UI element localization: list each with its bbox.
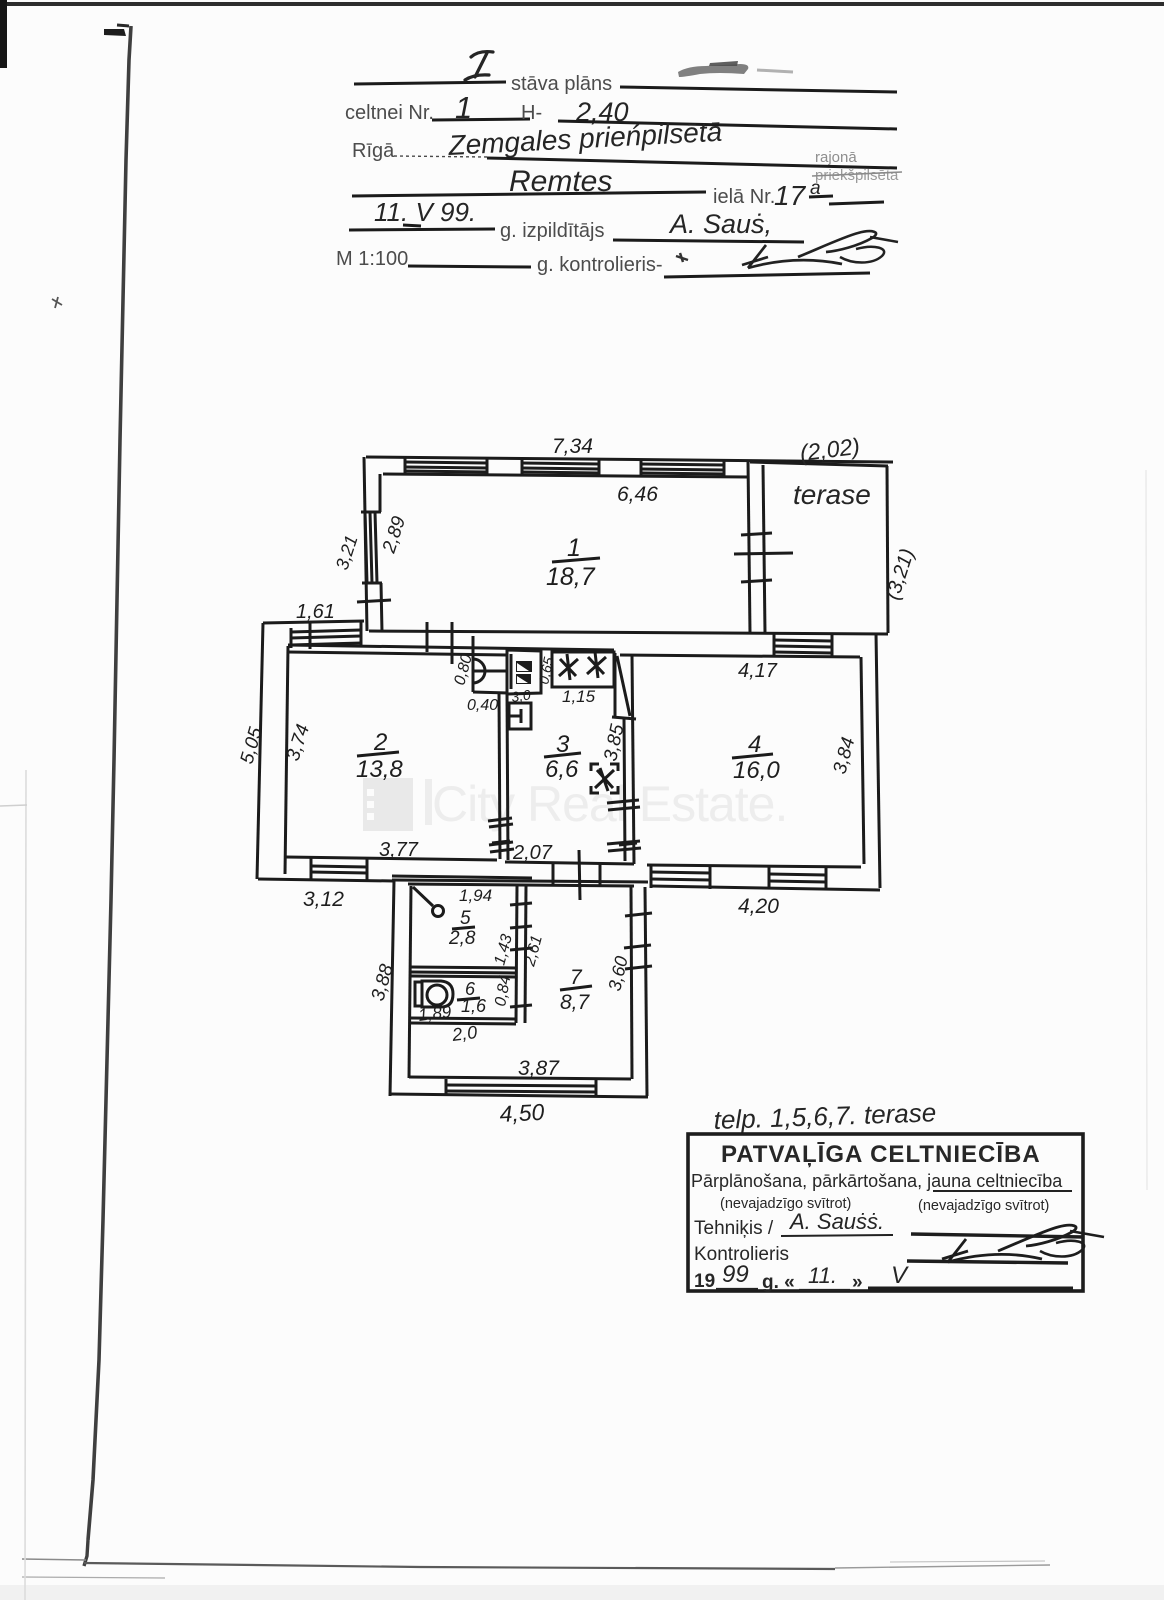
svg-text:1,43: 1,43 (491, 932, 516, 967)
svg-text:2,0: 2,0 (450, 1022, 478, 1045)
svg-text:8,7: 8,7 (560, 991, 591, 1014)
svg-text:5: 5 (460, 908, 471, 929)
svg-text:1: 1 (567, 534, 581, 562)
svg-text:7,34: 7,34 (552, 435, 593, 458)
svg-text:99: 99 (722, 1261, 749, 1288)
svg-text:Pārplānošana, pārkārtošana, ja: Pārplānošana, pārkārtošana, jauna celtni… (691, 1171, 1063, 1191)
svg-text:rajonā: rajonā (815, 149, 857, 166)
svg-text:3,77: 3,77 (379, 839, 419, 861)
svg-text:6,6: 6,6 (545, 756, 579, 783)
svg-text:ielā Nr.: ielā Nr. (713, 186, 775, 208)
svg-text:Rīgā: Rīgā (352, 140, 395, 162)
svg-text:2,07: 2,07 (512, 842, 553, 864)
svg-text:3,84: 3,84 (830, 735, 860, 776)
svg-text:H-: H- (521, 102, 542, 124)
svg-text:0,84: 0,84 (492, 974, 514, 1008)
svg-text:Zemgales prieńpilsētā: Zemgales prieńpilsētā (447, 116, 723, 161)
svg-text:6,46: 6,46 (617, 483, 658, 506)
svg-text:3,12: 3,12 (303, 888, 344, 911)
svg-text:M 1:100: M 1:100 (336, 248, 408, 270)
svg-text:(nevajadzīgo svītrot): (nevajadzīgo svītrot) (918, 1198, 1049, 1214)
svg-text:3,87: 3,87 (518, 1057, 560, 1080)
svg-text:celtnei Nr.: celtnei Nr. (345, 102, 434, 124)
svg-text:18,7: 18,7 (546, 563, 596, 591)
svg-text:2,8: 2,8 (448, 928, 476, 949)
svg-text:4,50: 4,50 (499, 1099, 545, 1127)
svg-text:13,8: 13,8 (356, 756, 403, 783)
svg-text:V: V (891, 1262, 909, 1289)
svg-text:telp. 1,5,6,7. terase: telp. 1,5,6,7. terase (713, 1097, 937, 1135)
svg-text:1,15: 1,15 (562, 687, 596, 706)
svg-text:g. izpildītājs: g. izpildītājs (500, 220, 605, 242)
svg-text:1,61: 1,61 (296, 601, 335, 623)
svg-text:»: » (852, 1272, 863, 1293)
svg-text:0,40: 0,40 (467, 697, 498, 714)
svg-text:g. kontrolieris-: g. kontrolieris- (537, 254, 663, 276)
svg-text:1,89: 1,89 (417, 1002, 453, 1025)
svg-text:3,60: 3,60 (604, 954, 631, 993)
svg-text:7: 7 (570, 966, 583, 989)
svg-text:A. Sauṡṡ.: A. Sauṡṡ. (788, 1209, 884, 1234)
svg-text:g. «: g. « (762, 1272, 795, 1293)
svg-text:11. V 99.: 11. V 99. (374, 197, 476, 227)
svg-text:16,0: 16,0 (733, 757, 780, 784)
svg-text:PATVAĻĪGA CELTNIECĪBA: PATVAĻĪGA CELTNIECĪBA (721, 1141, 1041, 1168)
svg-text:4,17: 4,17 (738, 660, 778, 682)
svg-text:5,05: 5,05 (237, 725, 267, 767)
svg-text:19: 19 (694, 1271, 715, 1292)
svg-text:17: 17 (774, 180, 807, 211)
svg-text:stāva plāns: stāva plāns (511, 73, 612, 95)
svg-text:3,88: 3,88 (368, 962, 398, 1004)
svg-text:4,20: 4,20 (738, 895, 779, 918)
svg-text:11.: 11. (808, 1263, 837, 1288)
svg-text:3,21: 3,21 (332, 533, 362, 573)
svg-text:Tehniķis /: Tehniķis / (694, 1218, 774, 1239)
svg-text:1,94: 1,94 (459, 886, 492, 905)
svg-text:2,89: 2,89 (378, 513, 410, 556)
svg-text:terase: terase (793, 479, 871, 510)
svg-text:1,6: 1,6 (461, 996, 487, 1016)
svg-text:A. Sauṡ,: A. Sauṡ, (668, 209, 772, 239)
